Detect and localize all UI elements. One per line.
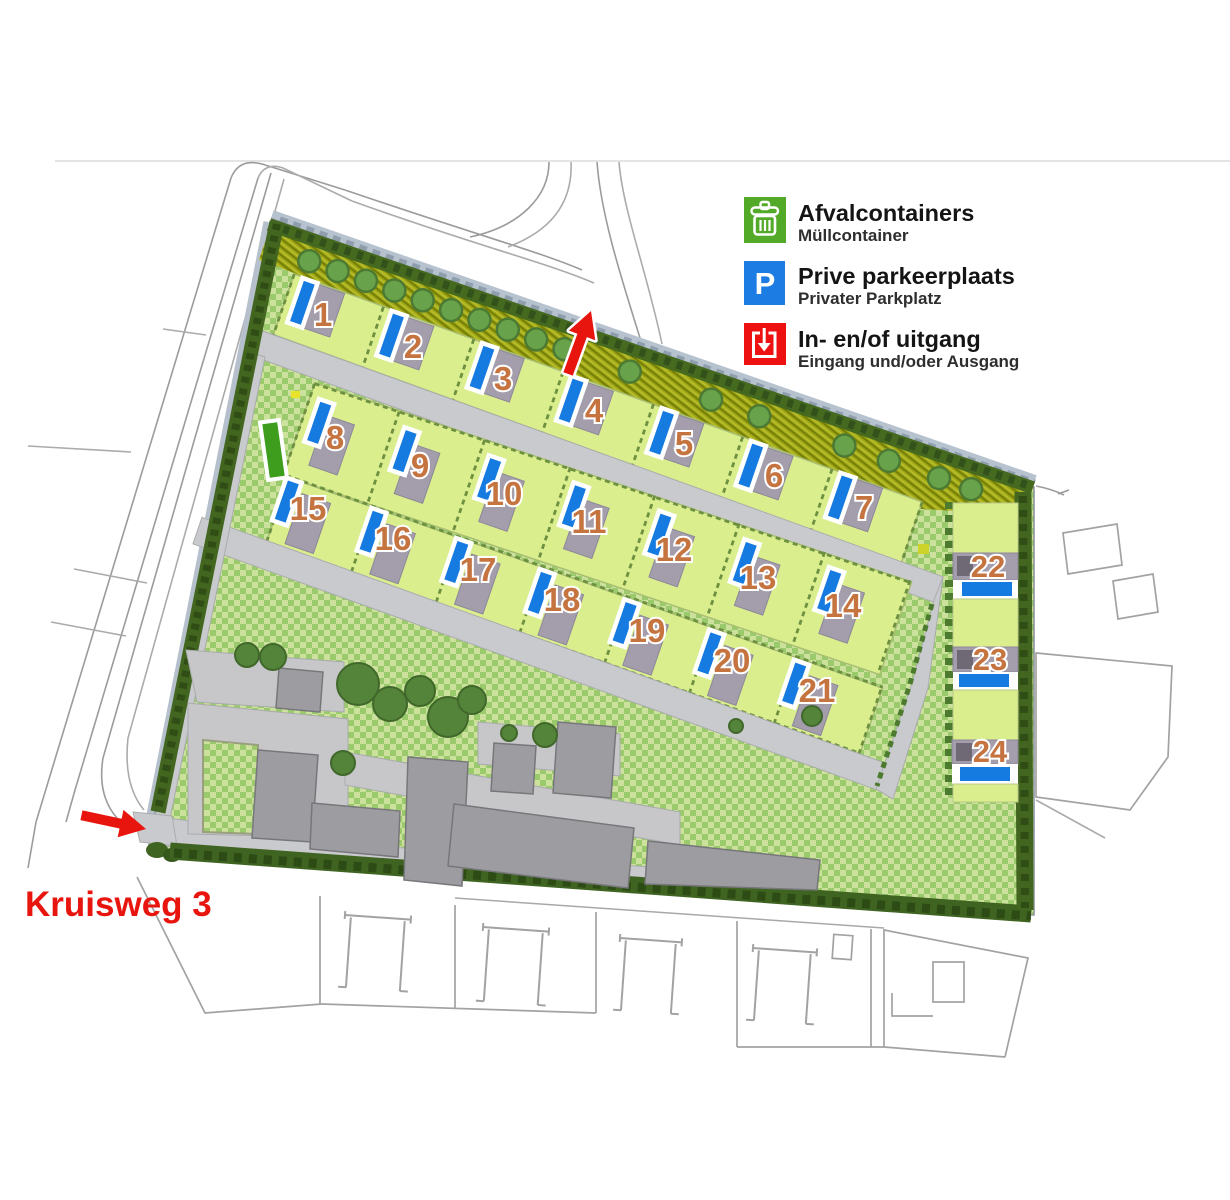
svg-text:4: 4	[585, 392, 604, 429]
svg-text:Kruisweg 3: Kruisweg 3	[25, 885, 212, 924]
svg-text:Eingang und/oder Ausgang: Eingang und/oder Ausgang	[798, 352, 1019, 371]
svg-text:23: 23	[973, 642, 1007, 677]
svg-text:3: 3	[494, 360, 512, 397]
svg-text:20: 20	[714, 642, 751, 679]
svg-text:11: 11	[572, 503, 607, 540]
svg-text:Prive parkeerplaats: Prive parkeerplaats	[798, 263, 1015, 289]
svg-text:In- en/of uitgang: In- en/of uitgang	[798, 326, 981, 352]
svg-text:14: 14	[825, 587, 862, 624]
svg-text:22: 22	[971, 549, 1005, 584]
svg-text:8: 8	[326, 419, 344, 456]
svg-text:18: 18	[544, 581, 581, 618]
svg-text:16: 16	[375, 520, 412, 557]
svg-text:21: 21	[799, 672, 836, 709]
svg-text:P: P	[755, 266, 776, 301]
svg-text:13: 13	[740, 559, 777, 596]
svg-text:Afvalcontainers: Afvalcontainers	[798, 200, 974, 226]
svg-text:17: 17	[460, 551, 497, 588]
svg-text:2: 2	[404, 328, 422, 365]
svg-text:12: 12	[656, 531, 693, 568]
svg-text:19: 19	[629, 612, 666, 649]
svg-text:15: 15	[290, 490, 327, 527]
svg-text:24: 24	[973, 734, 1008, 769]
svg-text:7: 7	[855, 489, 873, 526]
svg-text:Privater Parkplatz: Privater Parkplatz	[798, 289, 942, 308]
svg-text:9: 9	[411, 447, 429, 484]
svg-text:5: 5	[675, 425, 693, 462]
svg-text:1: 1	[314, 296, 332, 333]
svg-text:6: 6	[765, 457, 783, 494]
svg-text:10: 10	[486, 475, 523, 512]
svg-text:Müllcontainer: Müllcontainer	[798, 226, 909, 245]
